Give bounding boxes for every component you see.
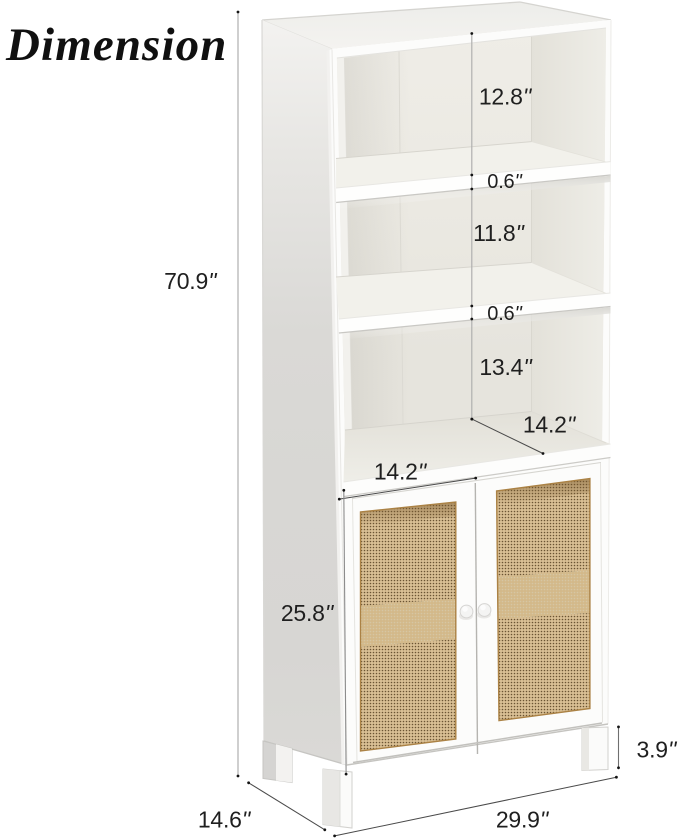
svg-text:14.6'': 14.6'' xyxy=(198,807,252,833)
svg-text:0.6'': 0.6'' xyxy=(487,303,523,325)
svg-text:25.8'': 25.8'' xyxy=(281,600,335,626)
svg-text:Dimension: Dimension xyxy=(5,19,227,71)
svg-text:11.8'': 11.8'' xyxy=(473,220,525,246)
svg-text:13.4'': 13.4'' xyxy=(479,354,533,380)
svg-text:14.2'': 14.2'' xyxy=(523,412,577,438)
svg-text:14.2'': 14.2'' xyxy=(374,459,428,485)
svg-text:12.8'': 12.8'' xyxy=(479,84,533,110)
svg-text:70.9'': 70.9'' xyxy=(164,268,218,294)
svg-text:29.9'': 29.9'' xyxy=(496,807,550,833)
svg-text:3.9'': 3.9'' xyxy=(637,737,679,763)
svg-text:0.6'': 0.6'' xyxy=(487,171,523,193)
